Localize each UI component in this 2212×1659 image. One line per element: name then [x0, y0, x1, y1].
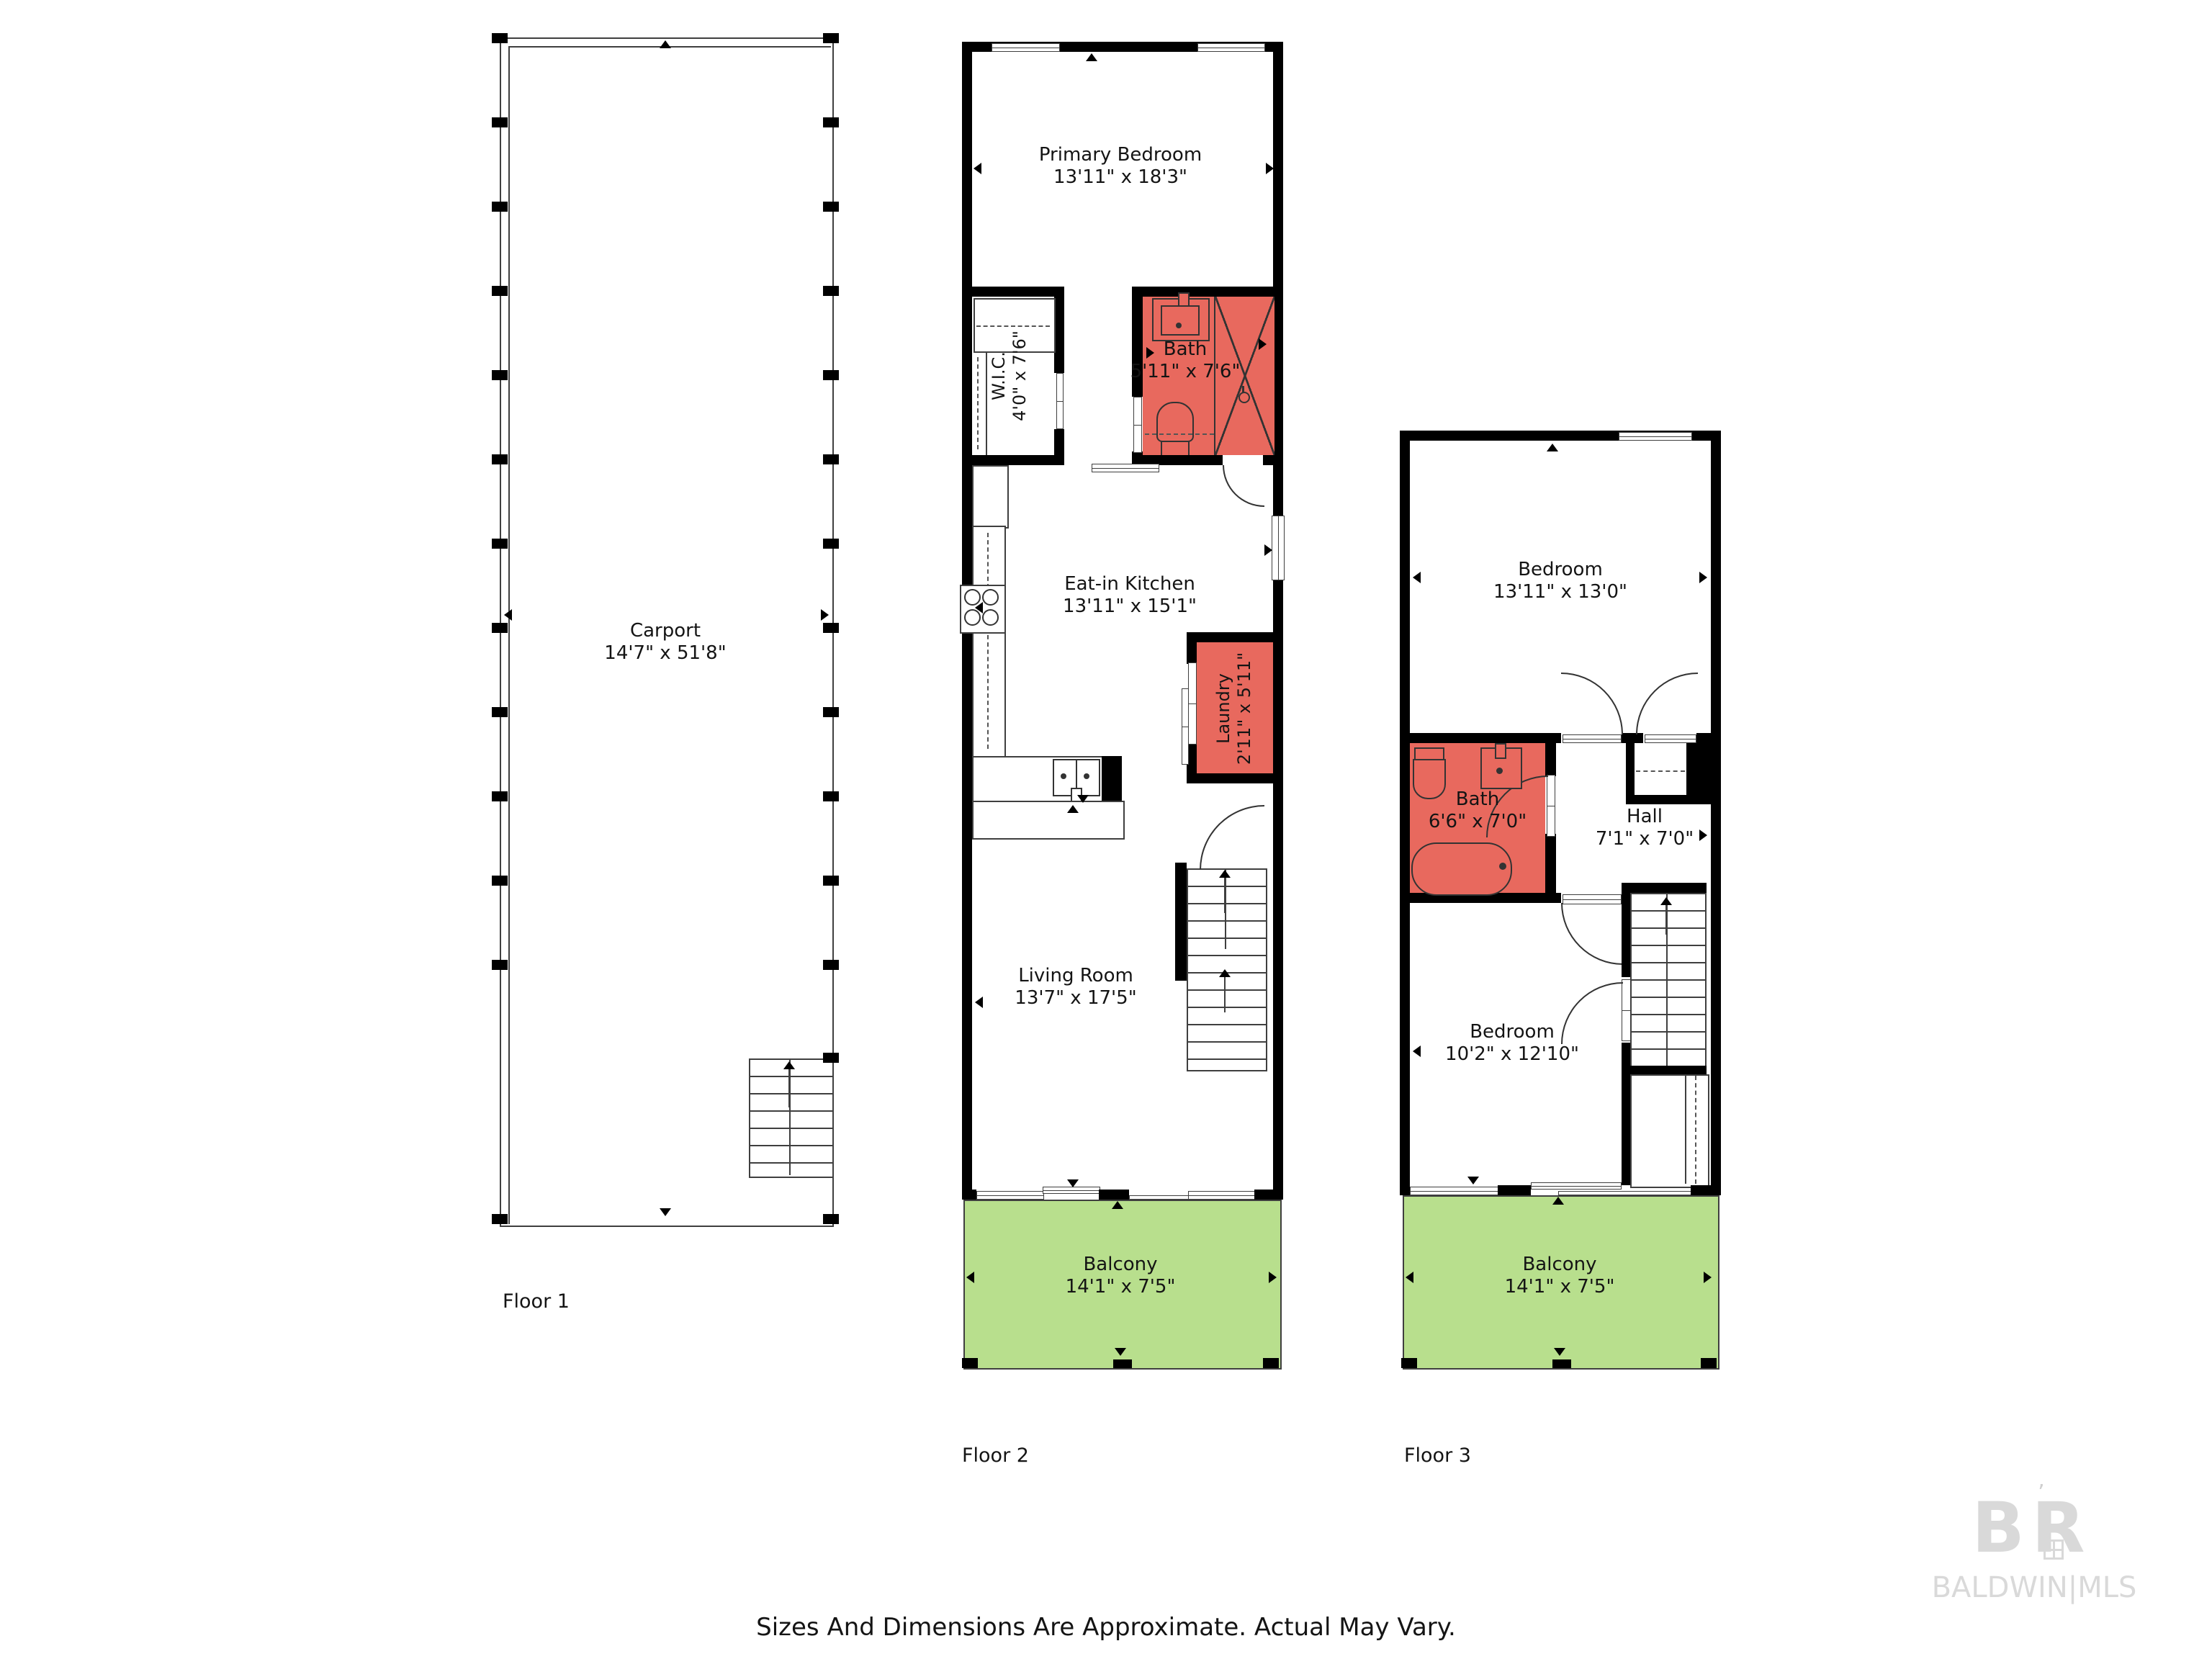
wall [1254, 1190, 1283, 1200]
wall [1711, 431, 1721, 1195]
room-dims: 6'6" x 7'0" [1429, 811, 1527, 833]
dimension-arrow-icon [1266, 163, 1274, 174]
wall [1626, 795, 1686, 804]
laundry-door-leaf [1182, 688, 1189, 765]
wall [1400, 431, 1410, 1195]
stairs-up-arrow-icon [1219, 870, 1231, 878]
faucet [1178, 292, 1190, 307]
counter-end-block [1102, 756, 1122, 801]
wall [1691, 1185, 1721, 1195]
room-label-balcony2: Balcony 14'1" x 7'5" [1066, 1254, 1176, 1298]
dimension-arrow-icon [1554, 1348, 1565, 1356]
dimension-arrow-icon [966, 1272, 974, 1283]
door-arc [1200, 805, 1264, 870]
balcony-post [1552, 1359, 1571, 1368]
wall [1622, 733, 1643, 743]
stairs-up-arrow-icon [783, 1061, 795, 1069]
room-dims: 10'2" x 12'10" [1445, 1043, 1579, 1066]
wall [1263, 455, 1283, 465]
window [1197, 43, 1265, 52]
room-dims: 13'11" x 13'0" [1493, 581, 1627, 603]
wall [1686, 743, 1711, 804]
sliding-door-panel [1043, 1187, 1100, 1194]
dimension-arrow-icon [1067, 805, 1079, 813]
room-label-balcony3: Balcony 14'1" x 7'5" [1505, 1254, 1615, 1298]
balcony-post [1263, 1358, 1279, 1368]
counter-dashed-line [987, 533, 989, 749]
dimension-arrow-icon [821, 609, 829, 621]
room-name: Bedroom [1493, 559, 1627, 581]
carport-post [492, 117, 508, 127]
carport-post [492, 791, 508, 801]
wall [1545, 834, 1556, 893]
kitchen-bar [972, 801, 1125, 840]
disclaimer-text: Sizes And Dimensions Are Approximate. Ac… [0, 1613, 2212, 1642]
pocket-door [1092, 464, 1159, 472]
dimension-arrow-icon [1413, 572, 1421, 583]
bathtub [1411, 842, 1512, 896]
dimension-arrow-icon [1086, 53, 1097, 61]
stairs-arrow-stem [1224, 976, 1226, 1012]
room-dims: 14'1" x 7'5" [1066, 1276, 1176, 1298]
tub-faucet [1499, 863, 1506, 870]
dimension-arrow-icon [1699, 572, 1707, 583]
dimension-arrow-icon [974, 163, 981, 174]
house-window-icon [2044, 1539, 2064, 1560]
room-label-bath2: Bath 5'11" x 7'6" [1130, 338, 1241, 383]
closet-rod-dashed-line [1636, 770, 1685, 772]
stairs-arrow-stem [788, 1069, 790, 1107]
dimension-arrow-icon [1406, 1272, 1413, 1283]
carport-post [492, 1214, 508, 1224]
carport-inner-left-line [508, 46, 510, 1224]
dimension-arrow-icon [660, 1208, 671, 1216]
closet-rod-dashed-line [977, 357, 979, 449]
room-name: Eat-in Kitchen [1063, 573, 1197, 595]
room-label-bath3: Bath 6'6" x 7'0" [1429, 788, 1527, 833]
dimension-arrow-icon [1264, 544, 1272, 556]
room-label-living-room: Living Room 13'7" x 17'5" [1015, 965, 1136, 1010]
dimension-arrow-icon [1259, 338, 1267, 350]
dimension-arrow-icon [1552, 1197, 1564, 1205]
room-dims: 7'1" x 7'0" [1596, 828, 1694, 850]
dimension-arrow-icon [1413, 1046, 1421, 1057]
room-name: Living Room [1015, 965, 1136, 987]
wall [1187, 642, 1197, 664]
dimension-arrow-icon [1699, 829, 1707, 841]
wall [1630, 1066, 1707, 1074]
dimension-arrow-icon [1115, 1348, 1126, 1356]
dimension-arrow-icon [1547, 444, 1558, 451]
dimension-arrow-icon [660, 40, 671, 48]
wall [1498, 1185, 1531, 1195]
room-label-carport: Carport 14'7" x 51'8" [604, 620, 726, 665]
door-arc [1636, 673, 1698, 734]
closet-rod-dashed-line [976, 325, 1050, 327]
carport-stairs [749, 1058, 834, 1178]
drain-dot [1084, 773, 1089, 779]
closet-line [1685, 1076, 1686, 1184]
wall [1622, 1043, 1630, 1185]
door-arc [1223, 465, 1264, 507]
burner-icon [982, 609, 999, 626]
room-dims: 14'1" x 7'5" [1505, 1276, 1615, 1298]
room-label-bedroom3: Bedroom 13'11" x 13'0" [1493, 559, 1627, 603]
bath-dashed-line [1145, 433, 1214, 435]
carport-post [492, 202, 508, 212]
closet-rod-dashed-line [1695, 1076, 1696, 1184]
carport-post [823, 33, 839, 43]
balcony-post [962, 1358, 978, 1368]
window [976, 1191, 1044, 1200]
carport-post [823, 286, 839, 296]
sliding-door-panel [1531, 1182, 1622, 1190]
carport-post [823, 623, 839, 633]
wall [962, 287, 1064, 297]
floor3-label: Floor 3 [1404, 1444, 1471, 1467]
wall [1175, 863, 1187, 981]
carport-post [823, 454, 839, 464]
wall [1545, 743, 1556, 776]
door-arc [1561, 673, 1623, 734]
room-dims: 4'0" x 7'6" [1010, 331, 1030, 421]
wall [962, 1190, 976, 1200]
balcony-post [1701, 1358, 1717, 1368]
room-label-laundry: Laundry 2'11" x 5'11" [1213, 652, 1255, 765]
door-arc [1561, 903, 1623, 965]
kitchen-cabinet [972, 465, 1009, 529]
stairs-up-arrow-icon [1219, 969, 1231, 977]
wall [1054, 287, 1064, 373]
wic-divider-line [986, 351, 987, 455]
carport-post [492, 876, 508, 886]
window [1188, 1191, 1256, 1200]
carport-post [823, 707, 839, 717]
room-name: Bath [1429, 788, 1527, 811]
kitchen-counter-left [972, 526, 1006, 759]
floor-plan-canvas: Carport 14'7" x 51'8" Floor 1 Primary Be… [0, 0, 2212, 1659]
carport-post [492, 370, 508, 380]
carport-post [492, 286, 508, 296]
dimension-arrow-icon [1146, 347, 1154, 359]
carport-post [492, 454, 508, 464]
room-dims: 13'11" x 15'1" [1063, 595, 1197, 618]
room-label-hall: Hall 7'1" x 7'0" [1596, 806, 1694, 850]
room-name: Laundry [1213, 652, 1234, 765]
drain-dot [1496, 768, 1503, 774]
floor2-label: Floor 2 [962, 1444, 1029, 1467]
carport-post [823, 370, 839, 380]
dimension-arrow-icon [1112, 1201, 1123, 1209]
carport-post [823, 960, 839, 970]
wall [1132, 287, 1283, 297]
baldwin-mls-logo-mark: BR [1967, 1488, 2097, 1568]
bath-door-sill [1133, 397, 1142, 453]
carport-post [492, 33, 508, 43]
carport-post [823, 202, 839, 212]
dimension-arrow-icon [1704, 1272, 1712, 1283]
drain-dot [1176, 323, 1182, 328]
stairs [1630, 893, 1707, 1069]
room-name: Balcony [1066, 1254, 1176, 1276]
wic-door-leaf [1056, 373, 1064, 429]
room-label-primary-bedroom: Primary Bedroom 13'11" x 18'3" [1039, 144, 1202, 189]
wall [1622, 883, 1707, 893]
room-name: Hall [1596, 806, 1694, 828]
wall [1400, 733, 1561, 743]
room-name: Balcony [1505, 1254, 1615, 1276]
carport-post [823, 791, 839, 801]
window [1619, 432, 1692, 441]
carport-post [492, 539, 508, 549]
carport-post [823, 117, 839, 127]
carport-post [823, 1214, 839, 1224]
window [1410, 1187, 1499, 1195]
stairs-arrow-stem [1665, 903, 1667, 935]
wall [1622, 893, 1630, 977]
toilet-bowl [1156, 402, 1194, 442]
dimension-arrow-icon [1467, 1177, 1479, 1184]
room-dims: 14'7" x 51'8" [604, 642, 726, 665]
dimension-arrow-icon [1269, 1272, 1277, 1283]
dimension-arrow-icon [975, 602, 983, 613]
door-sill [1563, 734, 1622, 743]
wall [1696, 733, 1721, 743]
room-name: Primary Bedroom [1039, 144, 1202, 166]
door-sill [1645, 734, 1696, 743]
burner-icon [982, 589, 999, 606]
dimension-arrow-icon [1067, 1179, 1079, 1187]
faucet [1495, 743, 1506, 759]
wall [1099, 1190, 1129, 1200]
drain-dot [1061, 773, 1066, 779]
wall [962, 455, 1064, 465]
closet [1630, 1074, 1709, 1188]
room-label-bedroom2: Bedroom 10'2" x 12'10" [1445, 1021, 1579, 1066]
carport-post [492, 623, 508, 633]
window [992, 43, 1060, 52]
carport-post [823, 876, 839, 886]
room-dims: 2'11" x 5'11" [1234, 652, 1255, 765]
shower-head-stub [1242, 386, 1244, 393]
wall [1187, 632, 1273, 642]
room-label-wic: W.I.C. 4'0" x 7'6" [989, 331, 1030, 421]
sink-basin [1161, 305, 1200, 336]
carport-post [492, 707, 508, 717]
balcony-post [1401, 1358, 1417, 1368]
wall [1273, 42, 1283, 1200]
room-dims: 13'7" x 17'5" [1015, 987, 1136, 1010]
dimension-arrow-icon [504, 609, 512, 621]
room-name: Bedroom [1445, 1021, 1579, 1043]
wall [1187, 773, 1273, 783]
carport-post [823, 1053, 839, 1063]
wall [1626, 743, 1635, 795]
stairs-arrow-stem [1224, 877, 1226, 913]
laundry-door-sill [1188, 662, 1197, 745]
dimension-arrow-icon [1077, 795, 1089, 803]
wall [1400, 1185, 1410, 1195]
room-name: Carport [604, 620, 726, 642]
carport-post [823, 539, 839, 549]
carport-post [492, 960, 508, 970]
room-dims: 5'11" x 7'6" [1130, 361, 1241, 383]
dimension-arrow-icon [975, 997, 983, 1008]
floor1-label: Floor 1 [503, 1290, 570, 1313]
shower-head-icon [1238, 392, 1250, 403]
balcony-post [1113, 1359, 1132, 1368]
room-dims: 13'11" x 18'3" [1039, 166, 1202, 189]
window [1272, 516, 1285, 580]
baldwin-mls-logo-text: BALDWIN|MLS [1912, 1571, 2157, 1604]
room-label-kitchen: Eat-in Kitchen 13'11" x 15'1" [1063, 573, 1197, 618]
stairs-up-arrow-icon [1660, 897, 1672, 905]
room-name: W.I.C. [989, 331, 1010, 421]
